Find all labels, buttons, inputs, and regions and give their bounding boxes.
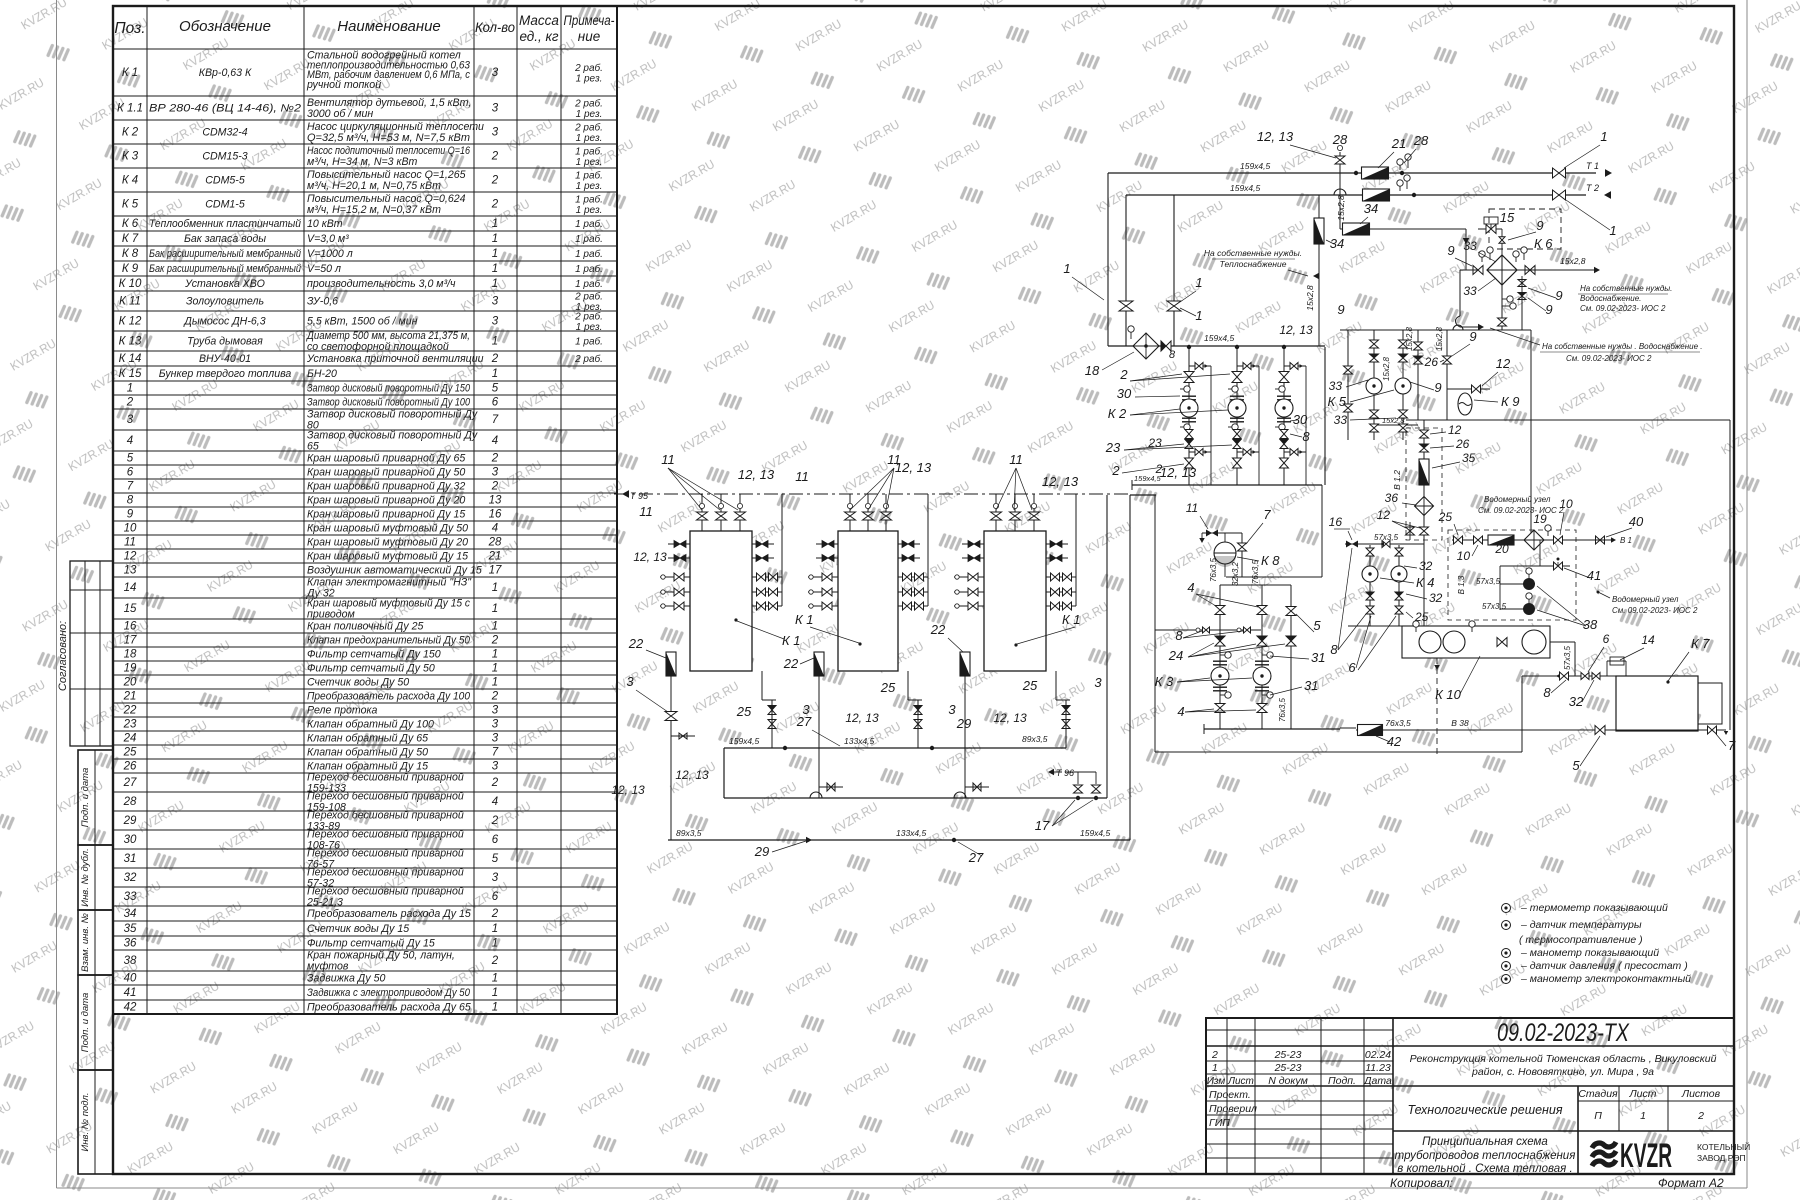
svg-text:1: 1	[1600, 129, 1607, 144]
svg-text:9: 9	[1337, 302, 1344, 317]
svg-text:159х4,5: 159х4,5	[1080, 828, 1111, 838]
svg-text:33: 33	[1334, 413, 1348, 427]
svg-text:14: 14	[124, 582, 137, 594]
svg-text:32: 32	[1569, 694, 1584, 709]
svg-text:8: 8	[1302, 429, 1310, 444]
svg-text:18: 18	[1085, 363, 1100, 378]
svg-text:2 раб.: 2 раб.	[574, 353, 603, 365]
svg-text:89х3,5: 89х3,5	[1022, 734, 1048, 744]
svg-text:3: 3	[492, 733, 499, 745]
svg-text:2 раб.: 2 раб.	[574, 310, 603, 322]
svg-text:Установка ХВО: Установка ХВО	[184, 278, 265, 290]
svg-text:02.24: 02.24	[1365, 1049, 1391, 1061]
svg-text:Инв. № подл.: Инв. № подл.	[80, 1093, 91, 1152]
svg-text:Т 2: Т 2	[1586, 183, 1599, 193]
svg-text:29: 29	[956, 716, 971, 731]
svg-text:18: 18	[124, 649, 137, 661]
svg-text:20: 20	[123, 677, 137, 689]
svg-text:32: 32	[1429, 591, 1443, 605]
svg-text:34: 34	[1330, 236, 1344, 251]
svg-text:Клапан обратный Ду 65: Клапан обратный Ду 65	[307, 733, 428, 745]
svg-text:( термосопративление ): ( термосопративление )	[1519, 934, 1643, 946]
svg-text:4: 4	[1187, 580, 1194, 595]
svg-text:25: 25	[880, 680, 896, 695]
svg-text:57х3,5: 57х3,5	[1482, 602, 1507, 611]
svg-text:Согласовано:: Согласовано:	[57, 621, 69, 691]
svg-text:2 раб.: 2 раб.	[574, 121, 603, 133]
svg-text:3: 3	[492, 103, 499, 115]
svg-text:5: 5	[127, 453, 134, 465]
svg-text:5: 5	[492, 383, 499, 395]
svg-text:1: 1	[1640, 1110, 1646, 1122]
svg-text:1: 1	[1063, 261, 1070, 276]
svg-text:35: 35	[1462, 451, 1476, 465]
svg-text:6: 6	[127, 467, 134, 479]
svg-text:57х3,5: 57х3,5	[1374, 533, 1399, 542]
svg-text:В 1: В 1	[1620, 536, 1632, 545]
svg-text:30: 30	[124, 834, 137, 846]
svg-text:м³/ч, Н=34 м, N=3 кВт: м³/ч, Н=34 м, N=3 кВт	[307, 156, 418, 168]
svg-text:34: 34	[1364, 201, 1378, 216]
svg-text:1 раб.: 1 раб.	[575, 145, 603, 157]
svg-text:– датчик температуры: – датчик температуры	[1520, 919, 1642, 931]
svg-text:1: 1	[492, 938, 498, 950]
svg-text:Примеча-: Примеча-	[564, 13, 615, 28]
svg-text:1 рез.: 1 рез.	[576, 157, 603, 168]
svg-text:N докум: N докум	[1268, 1075, 1308, 1087]
svg-text:Воздушник автоматический Ду 15: Воздушник автоматический Ду 15	[307, 565, 482, 577]
svg-text:12, 13: 12, 13	[845, 711, 879, 725]
svg-text:На собственные нужды.: На собственные нужды.	[1204, 248, 1302, 258]
svg-text:К 12: К 12	[119, 316, 142, 328]
svg-text:Дымосос ДН-6,3: Дымосос ДН-6,3	[183, 316, 265, 328]
svg-text:3: 3	[492, 467, 499, 479]
svg-text:12, 13: 12, 13	[633, 550, 667, 564]
svg-text:5: 5	[492, 853, 499, 865]
svg-text:2: 2	[491, 453, 499, 465]
svg-text:CDM32-4: CDM32-4	[202, 127, 247, 139]
svg-text:1: 1	[492, 233, 498, 245]
svg-text:4: 4	[1177, 704, 1184, 719]
svg-text:3: 3	[492, 67, 499, 79]
svg-text:Бак расширительный мембранный: Бак расширительный мембранный	[149, 248, 301, 260]
svg-text:Кол-во: Кол-во	[475, 20, 515, 35]
svg-text:6: 6	[1348, 660, 1356, 675]
svg-text:1: 1	[492, 1002, 498, 1014]
svg-text:6: 6	[492, 397, 499, 409]
svg-text:К 1: К 1	[122, 67, 138, 79]
svg-text:К 3: К 3	[1155, 674, 1174, 689]
svg-text:1: 1	[1212, 1062, 1218, 1074]
svg-text:7: 7	[492, 414, 499, 426]
svg-text:11.23: 11.23	[1365, 1062, 1391, 1074]
svg-text:4: 4	[492, 435, 498, 447]
svg-text:6: 6	[492, 834, 499, 846]
svg-text:Клапан предохранительный Ду 5: Клапан предохранительный Ду 50	[307, 635, 470, 647]
svg-text:Теплоснабжение: Теплоснабжение	[1220, 259, 1287, 269]
svg-text:Реле протока: Реле протока	[307, 705, 378, 717]
svg-text:1: 1	[492, 663, 498, 675]
svg-text:4: 4	[492, 796, 498, 808]
svg-text:Лист: Лист	[1227, 1076, 1254, 1087]
svg-text:Т 96: Т 96	[1056, 768, 1074, 778]
svg-text:31: 31	[1311, 650, 1325, 665]
svg-text:Бункер твердого топлива: Бункер твердого топлива	[159, 368, 292, 380]
svg-text:28: 28	[1332, 132, 1348, 147]
svg-text:Кран шаровый приварной Ду 20: Кран шаровый приварной Ду 20	[307, 495, 465, 507]
svg-text:30: 30	[1293, 412, 1308, 427]
svg-text:25: 25	[1438, 510, 1453, 524]
svg-text:25: 25	[736, 704, 752, 719]
svg-text:33: 33	[124, 891, 137, 903]
svg-text:– манометр электроконтактный: – манометр электроконтактный	[1520, 973, 1691, 985]
svg-text:1: 1	[492, 582, 498, 594]
svg-text:11: 11	[661, 452, 675, 467]
svg-text:3: 3	[1094, 675, 1102, 690]
svg-text:16: 16	[124, 621, 137, 633]
svg-text:1: 1	[127, 383, 133, 395]
svg-text:33: 33	[1329, 379, 1343, 393]
svg-text:9: 9	[1469, 329, 1476, 344]
svg-text:К 8: К 8	[1261, 553, 1280, 568]
svg-text:27: 27	[123, 777, 137, 789]
svg-text:12, 13: 12, 13	[675, 768, 709, 782]
svg-text:133х4,5: 133х4,5	[844, 736, 875, 746]
svg-text:38: 38	[124, 955, 137, 967]
svg-text:7: 7	[127, 481, 134, 493]
svg-text:Реконструкция котельной Тюмен: Реконструкция котельной Тюменская област…	[1410, 1053, 1717, 1065]
svg-text:Изм: Изм	[1207, 1076, 1226, 1087]
svg-text:26: 26	[123, 761, 137, 773]
svg-text:12, 13: 12, 13	[611, 783, 645, 797]
svg-text:2: 2	[491, 151, 499, 163]
svg-text:ручной топкой: ручной топкой	[306, 79, 381, 91]
svg-text:7: 7	[492, 747, 499, 759]
svg-text:12, 13: 12, 13	[1279, 323, 1313, 337]
svg-text:Поз.: Поз.	[114, 20, 145, 37]
svg-text:1 раб.: 1 раб.	[575, 169, 603, 181]
svg-text:12: 12	[1377, 508, 1391, 522]
svg-text:1: 1	[492, 987, 498, 999]
svg-text:К 1: К 1	[782, 633, 801, 648]
svg-text:38: 38	[1583, 617, 1598, 632]
svg-text:V=1000 л: V=1000 л	[307, 248, 353, 260]
svg-text:1 рез.: 1 рез.	[576, 109, 603, 120]
svg-text:Преобразователь расхода Ду 10: Преобразователь расхода Ду 100	[307, 691, 470, 703]
svg-text:Бак запаса воды: Бак запаса воды	[184, 233, 266, 245]
svg-text:159х4,5: 159х4,5	[729, 736, 760, 746]
svg-text:Копировал:: Копировал:	[1390, 1176, 1453, 1190]
svg-text:К 10: К 10	[119, 278, 142, 290]
svg-text:13: 13	[124, 565, 137, 577]
svg-text:На собственные нужды . Водосна: На собственные нужды . Водоснабжение .	[1542, 342, 1702, 351]
svg-text:3: 3	[948, 702, 956, 717]
svg-text:57х3,5: 57х3,5	[1563, 645, 1572, 670]
svg-text:Кран шаровый муфтовый Ду 15: Кран шаровый муфтовый Ду 15	[307, 551, 468, 563]
svg-text:Теплообменник пластинчатый: Теплообменник пластинчатый	[149, 218, 301, 230]
svg-text:11: 11	[795, 469, 809, 484]
svg-text:Т 1: Т 1	[1586, 161, 1599, 171]
svg-text:21: 21	[1391, 136, 1406, 151]
svg-text:КВр-0,63 К: КВр-0,63 К	[199, 67, 252, 79]
svg-text:Кран шаровый приварной Ду 50: Кран шаровый приварной Ду 50	[307, 467, 465, 479]
svg-text:21: 21	[488, 551, 502, 563]
svg-text:Проект.: Проект.	[1209, 1089, 1251, 1101]
svg-text:В 1.3: В 1.3	[1457, 575, 1466, 594]
svg-text:35: 35	[124, 923, 137, 935]
svg-text:31: 31	[1304, 678, 1318, 693]
svg-text:Кран шаровый муфтовый Ду 20: Кран шаровый муфтовый Ду 20	[307, 537, 468, 549]
svg-text:3: 3	[492, 127, 499, 139]
svg-text:Масса: Масса	[519, 13, 559, 28]
svg-text:2: 2	[491, 908, 499, 920]
svg-text:36: 36	[1385, 491, 1399, 505]
svg-text:Затвор дисковый поворотный Ду: Затвор дисковый поворотный Ду	[307, 430, 478, 442]
svg-text:К 1: К 1	[1062, 612, 1081, 627]
svg-text:Кран шаровый приварной Ду 32: Кран шаровый приварной Ду 32	[307, 481, 465, 493]
svg-text:6: 6	[1603, 632, 1610, 646]
svg-text:CDM5-5: CDM5-5	[205, 175, 245, 187]
svg-text:П: П	[1594, 1110, 1602, 1122]
svg-text:12, 13: 12, 13	[993, 711, 1027, 725]
svg-text:2 раб.: 2 раб.	[574, 290, 603, 302]
svg-text:К 1: К 1	[795, 612, 814, 627]
svg-text:1: 1	[492, 248, 498, 260]
svg-text:К 1.1: К 1.1	[117, 103, 143, 115]
svg-text:См. 09.02-2023- ИОС 2: См. 09.02-2023- ИОС 2	[1612, 606, 1698, 615]
svg-text:25: 25	[123, 747, 137, 759]
svg-text:1: 1	[492, 649, 498, 661]
svg-text:К 11: К 11	[119, 296, 141, 308]
svg-text:3: 3	[492, 761, 499, 773]
svg-text:К 10: К 10	[1435, 687, 1462, 702]
svg-text:34: 34	[124, 908, 137, 920]
svg-text:1: 1	[492, 278, 498, 290]
svg-text:8: 8	[1543, 685, 1551, 700]
svg-text:Q=32,5 м³/ч, Н=53 м, N=7,5 к: Q=32,5 м³/ч, Н=53 м, N=7,5 кВт	[307, 132, 470, 144]
svg-text:28: 28	[488, 537, 502, 549]
svg-text:приводом: приводом	[307, 609, 356, 621]
svg-text:ВР 280-46 (ВЦ 14-46), №2: ВР 280-46 (ВЦ 14-46), №2	[149, 103, 301, 115]
svg-text:1 рез.: 1 рез.	[576, 205, 603, 216]
svg-text:К 6: К 6	[1534, 236, 1553, 251]
svg-text:12, 13: 12, 13	[1257, 129, 1294, 144]
svg-text:Подп. и дата: Подп. и дата	[80, 768, 91, 827]
svg-text:Проверил: Проверил	[1209, 1103, 1257, 1115]
svg-text:2: 2	[1697, 1110, 1704, 1122]
svg-text:30: 30	[1117, 386, 1132, 401]
svg-text:15: 15	[124, 603, 137, 615]
svg-text:25-23: 25-23	[1274, 1049, 1302, 1061]
svg-text:12: 12	[124, 551, 137, 563]
svg-text:15х2,8: 15х2,8	[1560, 256, 1586, 266]
svg-text:Водомерный узел: Водомерный узел	[1484, 495, 1551, 504]
svg-text:5: 5	[1313, 618, 1321, 633]
svg-text:17: 17	[124, 635, 137, 647]
svg-text:2: 2	[1119, 367, 1128, 382]
svg-text:2 раб.: 2 раб.	[574, 97, 603, 109]
svg-text:KVZR: KVZR	[1620, 1137, 1672, 1175]
svg-text:Затвор дисковый поворотный Ду: Затвор дисковый поворотный Ду 150	[307, 383, 470, 395]
svg-text:22: 22	[628, 636, 644, 651]
svg-text:К 2: К 2	[122, 127, 139, 139]
svg-text:К 7: К 7	[1691, 636, 1710, 651]
svg-text:– манометр показывающий: – манометр показывающий	[1520, 947, 1659, 959]
svg-text:К 3: К 3	[122, 151, 139, 163]
svg-text:23: 23	[1147, 436, 1162, 450]
svg-text:К 15: К 15	[119, 368, 142, 380]
svg-text:1: 1	[1195, 308, 1202, 323]
svg-text:в котельной . Схема тепловая .: в котельной . Схема тепловая .	[1397, 1163, 1572, 1175]
svg-text:32х3,2: 32х3,2	[1231, 561, 1240, 586]
svg-text:Труба дымовая: Труба дымовая	[187, 336, 263, 348]
svg-text:К 7: К 7	[122, 233, 139, 245]
svg-text:33: 33	[1463, 239, 1477, 253]
svg-text:8: 8	[1330, 642, 1338, 657]
svg-text:12: 12	[1448, 423, 1462, 437]
svg-text:Инв. № дубл.: Инв. № дубл.	[80, 848, 91, 906]
svg-text:8: 8	[1169, 349, 1176, 361]
svg-text:11: 11	[639, 504, 653, 519]
svg-text:Клапан обратный Ду 50: Клапан обратный Ду 50	[307, 747, 428, 759]
svg-text:Кран поливочный Ду 25: Кран поливочный Ду 25	[307, 621, 424, 633]
svg-text:– термометр показывающий: – термометр показывающий	[1520, 902, 1668, 914]
svg-text:29: 29	[754, 844, 769, 859]
svg-text:– датчик давления ( пресоста: – датчик давления ( пресостат )	[1520, 960, 1688, 972]
svg-text:40: 40	[1629, 514, 1644, 529]
svg-text:3: 3	[127, 414, 134, 426]
svg-text:2: 2	[491, 481, 499, 493]
svg-text:1: 1	[492, 973, 498, 985]
svg-text:Затвор дисковый поворотный Ду: Затвор дисковый поворотный Ду 100	[307, 397, 470, 409]
svg-text:36: 36	[124, 938, 137, 950]
svg-text:2: 2	[491, 635, 499, 647]
svg-text:24: 24	[1168, 648, 1183, 663]
svg-text:1 раб.: 1 раб.	[575, 263, 603, 275]
svg-text:21: 21	[123, 691, 137, 703]
svg-text:1 рез.: 1 рез.	[576, 133, 603, 144]
svg-text:33: 33	[1463, 284, 1477, 298]
svg-text:13: 13	[489, 495, 502, 507]
svg-text:1: 1	[492, 336, 498, 348]
svg-text:Кран шаровый муфтовый Ду 50: Кран шаровый муфтовый Ду 50	[307, 523, 468, 535]
svg-text:ЗАВОД РЭП: ЗАВОД РЭП	[1697, 1153, 1746, 1163]
svg-text:Листов: Листов	[1681, 1088, 1721, 1100]
svg-text:3: 3	[492, 719, 499, 731]
svg-text:25-23: 25-23	[1274, 1062, 1302, 1074]
svg-text:1 раб.: 1 раб.	[575, 233, 603, 245]
svg-text:9: 9	[1555, 288, 1562, 303]
svg-text:2: 2	[126, 397, 134, 409]
svg-text:В 1.2: В 1.2	[1392, 470, 1402, 490]
svg-text:Счетчик воды Ду 50: Счетчик воды Ду 50	[307, 677, 409, 689]
svg-text:17: 17	[489, 565, 502, 577]
svg-text:Формат А2: Формат А2	[1658, 1176, 1724, 1190]
svg-text:Установка приточной вентиляции: Установка приточной вентиляции	[306, 353, 484, 365]
svg-text:9: 9	[1545, 302, 1552, 317]
svg-text:10 кВт: 10 кВт	[307, 218, 343, 230]
svg-text:159х4,5: 159х4,5	[1230, 183, 1261, 193]
svg-text:К 4: К 4	[1416, 575, 1435, 590]
svg-text:муфтов: муфтов	[307, 961, 349, 973]
svg-text:Золоуловитель: Золоуловитель	[186, 296, 264, 308]
svg-text:12, 13: 12, 13	[738, 467, 775, 482]
svg-text:1: 1	[492, 621, 498, 633]
svg-text:11: 11	[1186, 501, 1198, 515]
svg-text:12, 13: 12, 13	[1042, 474, 1079, 489]
svg-text:76х3,5: 76х3,5	[1209, 557, 1218, 582]
svg-text:2: 2	[1155, 462, 1163, 476]
svg-text:ВНУ-40-01: ВНУ-40-01	[199, 353, 251, 365]
svg-text:К 8: К 8	[122, 248, 139, 260]
svg-text:Задвижка Ду 50: Задвижка Ду 50	[307, 973, 386, 985]
svg-text:Принципиальная схема: Принципиальная схема	[1422, 1136, 1548, 1148]
svg-text:м³/ч, Н=20,1 м, N=0,75 кВт: м³/ч, Н=20,1 м, N=0,75 кВт	[307, 180, 441, 192]
svg-text:На собственные нужды.: На собственные нужды.	[1580, 284, 1672, 293]
svg-text:7: 7	[1263, 507, 1271, 522]
svg-text:2: 2	[1111, 463, 1120, 478]
svg-text:25: 25	[1022, 678, 1038, 693]
svg-text:К 6: К 6	[122, 218, 139, 230]
svg-text:5: 5	[1572, 758, 1580, 773]
svg-text:1: 1	[1609, 223, 1616, 238]
svg-text:28: 28	[123, 796, 137, 808]
svg-text:32: 32	[1419, 559, 1433, 573]
svg-text:район, с. Нововяткино, ул. Мир: район, с. Нововяткино, ул. Мира , 9а	[1471, 1066, 1654, 1078]
svg-text:1: 1	[492, 263, 498, 275]
svg-text:19: 19	[124, 663, 137, 675]
svg-text:2: 2	[491, 777, 499, 789]
svg-text:м³/ч, Н=15,2 м, N=0,37 кВт: м³/ч, Н=15,2 м, N=0,37 кВт	[307, 204, 441, 216]
svg-text:Фильтр сетчатый Ду 50: Фильтр сетчатый Ду 50	[307, 663, 435, 675]
svg-text:1 раб.: 1 раб.	[575, 336, 603, 348]
svg-text:К 5: К 5	[1327, 394, 1346, 409]
svg-text:2 раб.: 2 раб.	[574, 62, 603, 74]
svg-text:1: 1	[492, 677, 498, 689]
svg-text:42: 42	[124, 1002, 137, 1014]
svg-text:Клапан обратный Ду 100: Клапан обратный Ду 100	[307, 719, 434, 731]
svg-text:15х2,8: 15х2,8	[1405, 326, 1414, 351]
svg-text:Обозначение: Обозначение	[179, 18, 271, 35]
svg-text:3: 3	[492, 872, 499, 884]
svg-text:Кран шаровый приварной Ду 65: Кран шаровый приварной Ду 65	[307, 453, 465, 465]
svg-text:6: 6	[492, 891, 499, 903]
svg-text:V=3,0 м³: V=3,0 м³	[307, 233, 349, 245]
svg-text:10: 10	[1457, 549, 1471, 563]
svg-text:Преобразователь расхода Ду 65: Преобразователь расхода Ду 65	[307, 1002, 471, 1014]
svg-text:1: 1	[492, 368, 498, 380]
svg-text:11: 11	[124, 537, 136, 549]
svg-text:3: 3	[626, 674, 634, 689]
svg-text:производительность 3,0 м³/ч: производительность 3,0 м³/ч	[307, 278, 456, 290]
svg-text:65: 65	[307, 441, 319, 453]
svg-text:09.02-2023-ТХ: 09.02-2023-ТХ	[1497, 1019, 1630, 1047]
svg-text:23: 23	[1105, 440, 1121, 455]
svg-text:КОТЕЛЬНЫЙ: КОТЕЛЬНЫЙ	[1697, 1141, 1750, 1152]
svg-text:Дата: Дата	[1363, 1075, 1392, 1087]
svg-text:12: 12	[1496, 356, 1511, 371]
svg-text:41: 41	[1587, 568, 1601, 583]
svg-text:Счетчик воды Ду 15: Счетчик воды Ду 15	[307, 923, 409, 935]
svg-text:1 рез.: 1 рез.	[576, 73, 603, 84]
svg-text:17: 17	[1035, 818, 1050, 833]
svg-text:Наименование: Наименование	[337, 18, 441, 35]
svg-text:См. 09.02-2023- ИОС 2: См. 09.02-2023- ИОС 2	[1478, 506, 1564, 515]
svg-text:Стадия: Стадия	[1578, 1088, 1618, 1100]
svg-text:Фильтр сетчатый Ду 150: Фильтр сетчатый Ду 150	[307, 649, 441, 661]
svg-text:15х2,8: 15х2,8	[1336, 195, 1346, 221]
svg-text:15х2,8: 15х2,8	[1435, 326, 1444, 351]
